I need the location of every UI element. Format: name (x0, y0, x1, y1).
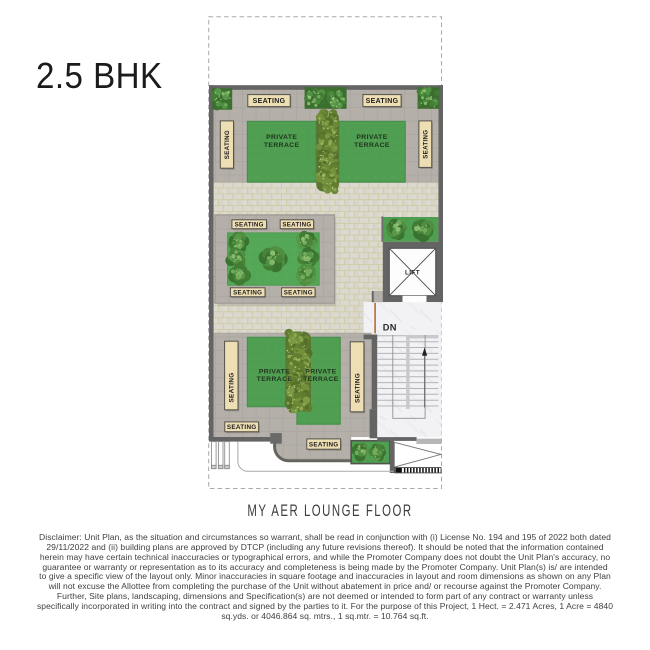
svg-text:SEATING: SEATING (366, 98, 399, 105)
svg-text:TERRACE: TERRACE (303, 376, 339, 383)
svg-text:SEATING: SEATING (235, 222, 264, 229)
svg-text:TERRACE: TERRACE (264, 142, 300, 149)
svg-text:SEATING: SEATING (423, 130, 430, 159)
svg-text:SEATING: SEATING (284, 290, 313, 297)
svg-text:PRIVATE: PRIVATE (259, 369, 290, 376)
svg-text:PRIVATE: PRIVATE (266, 134, 297, 141)
svg-text:SEATING: SEATING (309, 441, 339, 448)
svg-text:DN: DN (383, 323, 397, 333)
svg-text:TERRACE: TERRACE (354, 142, 390, 149)
svg-text:PRIVATE: PRIVATE (305, 369, 336, 376)
svg-text:SEATING: SEATING (224, 130, 231, 159)
svg-text:PRIVATE: PRIVATE (356, 134, 387, 141)
svg-text:SEATING: SEATING (253, 98, 286, 105)
svg-text:LIFT: LIFT (405, 270, 420, 277)
svg-text:SEATING: SEATING (354, 373, 361, 403)
svg-text:SEATING: SEATING (282, 222, 311, 229)
svg-text:SEATING: SEATING (229, 372, 236, 402)
svg-text:TERRACE: TERRACE (257, 376, 293, 383)
svg-text:SEATING: SEATING (227, 424, 257, 431)
svg-text:SEATING: SEATING (233, 290, 262, 297)
